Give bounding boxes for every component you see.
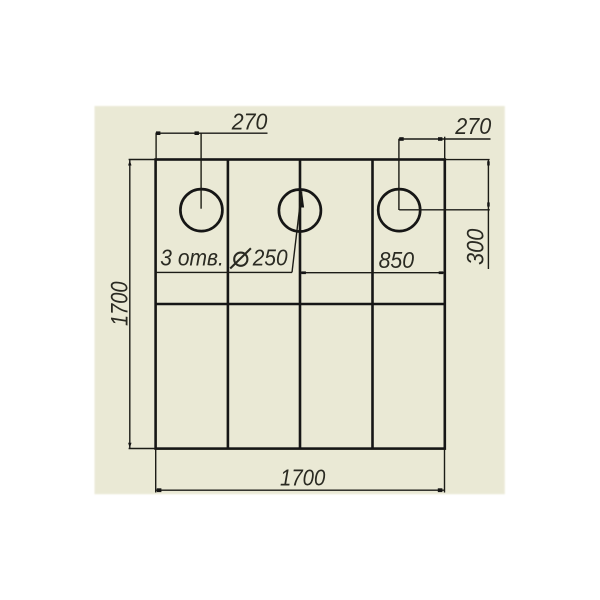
svg-text:850: 850: [379, 247, 415, 273]
svg-text:1700: 1700: [280, 465, 325, 491]
svg-text:1700: 1700: [107, 281, 134, 326]
svg-text:3 отв.: 3 отв.: [160, 245, 224, 271]
svg-text:300: 300: [463, 228, 490, 265]
svg-text:250: 250: [252, 245, 288, 271]
svg-text:270: 270: [231, 108, 268, 134]
svg-text:270: 270: [454, 113, 491, 139]
